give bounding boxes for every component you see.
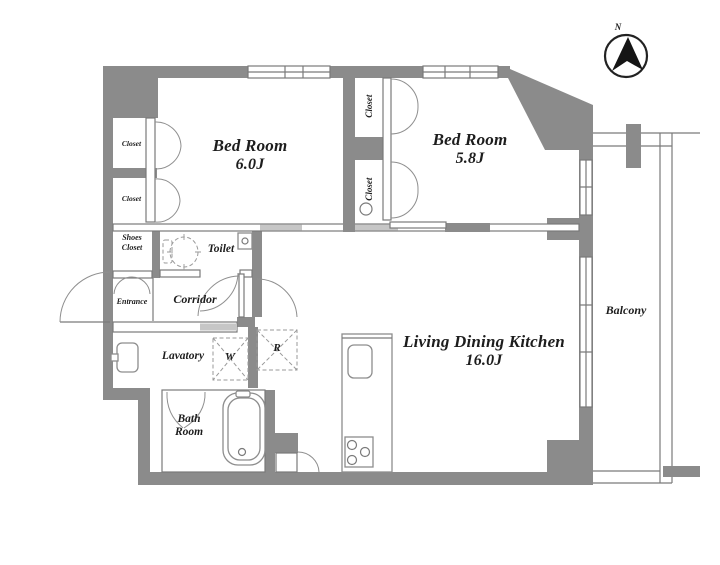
bedroom1-size: 6.0J (165, 156, 335, 174)
closet-left-top-label: Closet (112, 140, 151, 149)
ldk-name: Living Dining Kitchen (359, 332, 609, 352)
bathroom-line2: Room (167, 426, 211, 439)
closet-mid-bottom-label: Closet (364, 161, 374, 217)
closet-mid-top-label: Closet (364, 78, 374, 134)
closet-left-bottom-label: Closet (112, 195, 151, 204)
ldk-size: 16.0J (359, 352, 609, 370)
north-label: N (608, 22, 628, 32)
sink-icon (111, 343, 138, 372)
bathroom-line1: Bath (167, 413, 211, 426)
toilet-icon (163, 234, 201, 270)
hand-basin-icon (238, 233, 252, 249)
north-arrow-icon (605, 35, 647, 77)
bedroom1-label: Bed Room 6.0J (165, 136, 335, 174)
bedroom2-name: Bed Room (385, 130, 555, 150)
shoes-closet-line1: Shoes (110, 233, 154, 243)
shoes-closet-line2: Closet (110, 243, 154, 253)
bedroom2-label: Bed Room 5.8J (385, 130, 555, 168)
washing-machine-label: W (218, 351, 242, 364)
bedroom2-size: 5.8J (385, 150, 555, 168)
toilet-label: Toilet (203, 243, 239, 256)
bedroom1-name: Bed Room (165, 136, 335, 156)
lavatory-label: Lavatory (155, 350, 211, 363)
living-dining-kitchen-label: Living Dining Kitchen 16.0J (359, 332, 609, 370)
floor-plan: Bed Room 6.0J Bed Room 5.8J Living Dinin… (0, 0, 720, 565)
bathtub-icon (223, 391, 265, 465)
entrance-label: Entrance (112, 297, 152, 307)
floorplan-drawing (0, 0, 720, 565)
refrigerator-label: R (265, 342, 289, 355)
bathroom-label: Bath Room (167, 413, 211, 439)
balcony-label: Balcony (591, 304, 661, 318)
shoes-closet-label: Shoes Closet (110, 233, 154, 253)
corridor-label: Corridor (165, 293, 225, 307)
